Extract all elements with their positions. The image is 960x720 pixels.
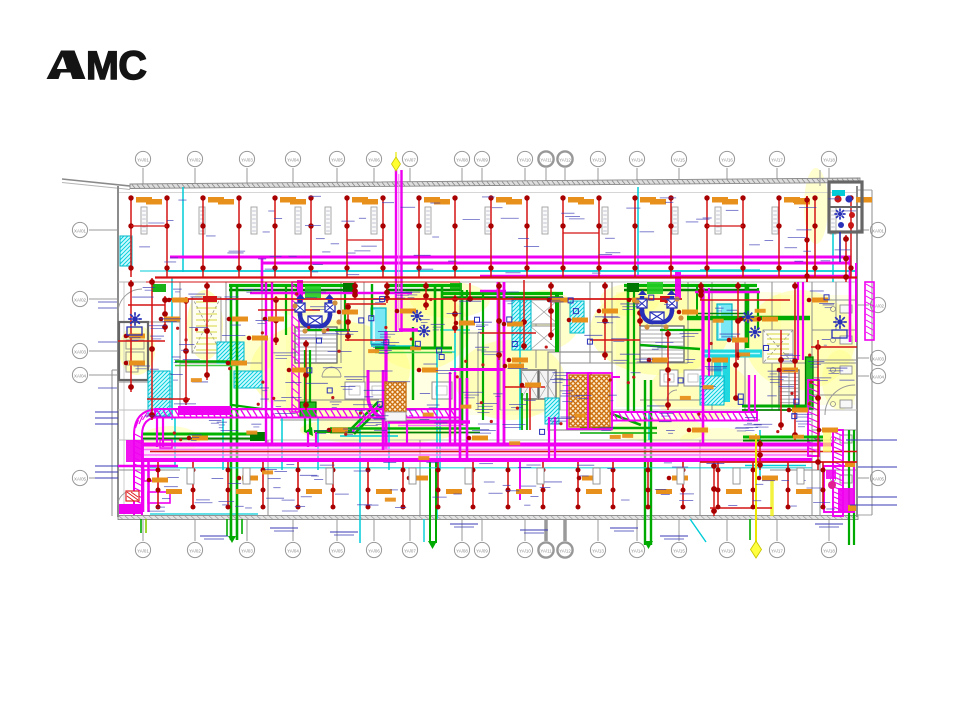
svg-text:XA/04: XA/04 [74, 374, 87, 379]
svg-text:YA/09: YA/09 [476, 549, 488, 554]
svg-text:XA/03: XA/03 [872, 357, 885, 362]
svg-text:YA/17: YA/17 [771, 549, 783, 554]
svg-text:YA/07: YA/07 [404, 158, 416, 163]
svg-text:YA/15: YA/15 [673, 158, 685, 163]
svg-text:YA/05: YA/05 [331, 158, 343, 163]
svg-text:YA/04: YA/04 [287, 158, 299, 163]
svg-text:YA/07: YA/07 [404, 549, 416, 554]
svg-text:YA/14: YA/14 [631, 158, 643, 163]
svg-text:YA/18: YA/18 [823, 549, 835, 554]
svg-text:MC: MC [86, 44, 146, 88]
svg-text:YA/03: YA/03 [241, 549, 253, 554]
svg-text:YA/06: YA/06 [368, 158, 380, 163]
svg-text:YA/13: YA/13 [592, 158, 604, 163]
svg-text:YA/09: YA/09 [476, 158, 488, 163]
svg-text:YA/12: YA/12 [559, 549, 571, 554]
svg-text:YA/14: YA/14 [631, 549, 643, 554]
svg-text:XA/03: XA/03 [74, 350, 87, 355]
svg-text:XA/02: XA/02 [74, 298, 87, 303]
svg-text:YA/08: YA/08 [456, 549, 468, 554]
svg-text:YA/03: YA/03 [241, 158, 253, 163]
svg-text:YA/06: YA/06 [368, 549, 380, 554]
svg-text:YA/02: YA/02 [189, 158, 201, 163]
svg-text:YA/16: YA/16 [721, 158, 733, 163]
svg-text:YA/11: YA/11 [540, 549, 552, 554]
svg-text:YA/12: YA/12 [559, 158, 571, 163]
svg-text:YA/04: YA/04 [287, 549, 299, 554]
svg-text:YA/11: YA/11 [540, 158, 552, 163]
svg-text:XA/05: XA/05 [872, 477, 885, 482]
svg-text:XA/01: XA/01 [74, 229, 87, 234]
svg-text:YA/01: YA/01 [137, 549, 149, 554]
svg-text:XA/05: XA/05 [74, 477, 87, 482]
svg-text:YA/10: YA/10 [519, 549, 531, 554]
svg-text:YA/01: YA/01 [137, 158, 149, 163]
svg-text:YA/05: YA/05 [331, 549, 343, 554]
svg-text:YA/08: YA/08 [456, 158, 468, 163]
svg-text:XA/01: XA/01 [872, 229, 885, 234]
svg-text:YA/18: YA/18 [823, 158, 835, 163]
svg-text:YA/17: YA/17 [771, 158, 783, 163]
svg-text:YA/02: YA/02 [189, 549, 201, 554]
svg-text:YA/16: YA/16 [721, 549, 733, 554]
svg-text:XA/04: XA/04 [872, 375, 885, 380]
svg-text:YA/15: YA/15 [673, 549, 685, 554]
svg-text:YA/10: YA/10 [519, 158, 531, 163]
svg-text:YA/13: YA/13 [592, 549, 604, 554]
